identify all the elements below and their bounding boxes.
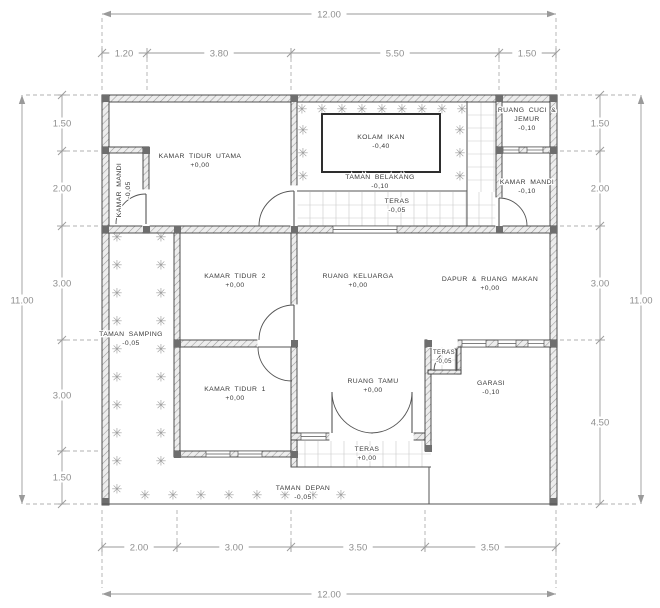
room-label-taman-belakang: TAMAN BELAKANG-0,10 (345, 174, 414, 190)
dim-arrowhead (638, 95, 644, 104)
plant-symbol: ✳ (437, 102, 448, 117)
dim-arrowhead (102, 591, 111, 597)
plant-symbol: ✳ (112, 454, 123, 469)
room-level: -0,10 (482, 389, 500, 396)
plant-symbol: ✳ (140, 488, 151, 503)
plant-symbol: ✳ (112, 286, 123, 301)
plant-symbol: ✳ (112, 398, 123, 413)
plant-symbol: ✳ (112, 426, 123, 441)
plant-symbol: ✳ (156, 370, 167, 385)
room-label-kamar-mandi-2: KAMAR MANDI-0,10 (500, 179, 554, 195)
dim-arrowhead (547, 591, 556, 597)
dim-arrowhead (19, 95, 25, 104)
room-level: +0,00 (225, 282, 244, 289)
column (550, 226, 557, 233)
dim-segment-label: 1.50 (591, 118, 610, 129)
plant-symbol: ✳ (156, 426, 167, 441)
plant-symbol: ✳ (337, 102, 348, 117)
dim-overall-label: 12.00 (317, 589, 341, 600)
dim-segment-label: 3.00 (53, 278, 72, 289)
plant-symbol: ✳ (252, 488, 263, 503)
column (550, 147, 557, 154)
plant-symbol: ✳ (298, 146, 309, 161)
room-name-line: KAMAR MANDI (500, 179, 554, 186)
door-swing-arc (259, 191, 294, 226)
column (291, 340, 298, 347)
plant-symbol: ✳ (156, 398, 167, 413)
column (174, 340, 181, 347)
dim-arrowhead (547, 11, 556, 17)
plant-symbol: ✳ (455, 123, 466, 138)
room-level: -0,05 (294, 494, 312, 501)
dim-segment-label: 3.50 (481, 542, 500, 553)
plant-symbol: ✳ (336, 488, 347, 503)
dim-segment-label: 1.50 (518, 48, 537, 59)
wall (102, 95, 109, 505)
plant-symbol: ✳ (156, 342, 167, 357)
dim-segment-label: 2.00 (53, 183, 72, 194)
column (174, 451, 181, 458)
room-level: -0,05 (125, 181, 132, 199)
room-label-kamar-tidur-2: KAMAR TIDUR 2+0,00 (204, 273, 266, 289)
room-name-line: KOLAM IKAN (357, 134, 405, 141)
dim-arrowhead (19, 495, 25, 504)
floor-plan-document: ✳✳✳✳✳✳✳✳✳✳✳✳✳✳✳✳✳✳✳✳✳✳✳✳✳✳✳✳✳✳✳✳✳✳✳✳✳✳✳✳… (0, 0, 660, 608)
dim-segment-label: 3.00 (225, 542, 244, 553)
wall (425, 340, 431, 451)
room-label-ruang-keluarga: RUANG KELUARGA+0,00 (322, 273, 393, 289)
plant-symbol: ✳ (297, 102, 308, 117)
column (143, 147, 150, 154)
column (143, 226, 150, 233)
dim-segment-label: 3.80 (210, 48, 229, 59)
room-name-line: JEMUR (514, 116, 539, 123)
dim-segment-label: 1.20 (115, 48, 134, 59)
door-opening (257, 339, 291, 347)
room-level: +0,00 (225, 395, 244, 402)
door-swing-arc (332, 392, 373, 433)
room-name-line: RUANG KELUARGA (322, 273, 393, 280)
column (291, 226, 298, 233)
door-swing-arc (258, 347, 292, 381)
dim-segment-label: 3.00 (591, 278, 610, 289)
dim-segment-label: 2.00 (130, 542, 149, 553)
room-name-line: RUANG CUCI & (498, 107, 556, 114)
dim-segment-label: 5.50 (386, 48, 405, 59)
room-name-line: RUANG TAMU (347, 378, 398, 385)
dim-segment-label: 3.00 (53, 390, 72, 401)
plant-symbol: ✳ (357, 102, 368, 117)
room-name-line: TERAS (355, 446, 380, 453)
column (496, 226, 503, 233)
plant-symbol: ✳ (317, 102, 328, 117)
door-swing-arc (371, 392, 412, 433)
plant-symbol: ✳ (196, 488, 207, 503)
room-name-line: GARASI (477, 380, 505, 387)
plant-symbol: ✳ (455, 146, 466, 161)
wall (174, 451, 297, 457)
dim-arrowhead (638, 495, 644, 504)
plant-symbol: ✳ (112, 370, 123, 385)
plant-symbol: ✳ (156, 286, 167, 301)
plant-symbol: ✳ (112, 342, 123, 357)
room-name-line: KAMAR MANDI (116, 163, 123, 217)
room-name-line: TERAS (433, 350, 455, 356)
wall (102, 226, 557, 233)
dim-segment-label: 3.50 (349, 542, 368, 553)
wall (291, 233, 297, 305)
door-swing-arc (499, 198, 527, 226)
plant-symbol: ✳ (457, 102, 468, 117)
room-level: -0,10 (518, 125, 536, 132)
room-level: +0,00 (480, 285, 499, 292)
plant-symbol: ✳ (224, 488, 235, 503)
wall (550, 95, 557, 505)
room-level: -0,40 (372, 143, 390, 150)
room-name-line: TAMAN DEPAN (276, 485, 331, 492)
room-level: +0,00 (363, 387, 382, 394)
plant-symbol: ✳ (156, 230, 167, 245)
wall (102, 147, 149, 153)
room-label-ruang-tamu: RUANG TAMU+0,00 (347, 378, 398, 394)
dim-overall-label: 12.00 (317, 9, 341, 20)
dim-overall-label: 11.00 (629, 295, 652, 306)
room-level: -0,05 (122, 340, 140, 347)
column (425, 445, 432, 452)
plant-symbol: ✳ (156, 258, 167, 273)
plant-symbol: ✳ (417, 102, 428, 117)
column (174, 226, 181, 233)
column (496, 95, 503, 102)
plant-symbol: ✳ (112, 314, 123, 329)
room-level: -0,05 (436, 359, 452, 365)
dim-overall-label: 11.00 (10, 295, 33, 306)
room-name-line: KAMAR TIDUR UTAMA (159, 153, 242, 160)
room-name-line: KAMAR TIDUR 2 (204, 273, 266, 280)
room-label-dapur-ruang-makan: DAPUR & RUANG MAKAN+0,00 (442, 276, 538, 292)
plant-symbol: ✳ (112, 258, 123, 273)
room-level: +0,00 (348, 282, 367, 289)
room-level: +0,00 (357, 455, 376, 462)
plant-symbol: ✳ (455, 169, 466, 184)
column (496, 147, 503, 154)
plant-symbol: ✳ (397, 102, 408, 117)
plant-symbol: ✳ (298, 169, 309, 184)
door-swing-arc (259, 305, 294, 340)
column (102, 226, 109, 233)
column (550, 340, 557, 347)
wall (102, 95, 557, 102)
room-label-kamar-tidur-1: KAMAR TIDUR 1+0,00 (204, 386, 266, 402)
dim-segment-label: 1.50 (53, 118, 72, 129)
column (102, 147, 109, 154)
room-name-line: KAMAR TIDUR 1 (204, 386, 266, 393)
dim-arrowhead (102, 11, 111, 17)
room-level: +0,00 (190, 162, 209, 169)
room-label-ruang-cuci-jemur: RUANG CUCI &JEMUR-0,10 (498, 107, 556, 132)
plant-symbol: ✳ (298, 123, 309, 138)
room-name-line: TAMAN SAMPING (99, 331, 163, 338)
plant-symbol: ✳ (112, 482, 123, 497)
room-label-garasi: GARASI-0,10 (477, 380, 505, 396)
dim-segment-label: 2.00 (591, 183, 610, 194)
column (550, 95, 557, 102)
plant-symbol: ✳ (156, 314, 167, 329)
plant-symbol: ✳ (377, 102, 388, 117)
plant-symbol: ✳ (168, 488, 179, 503)
room-name-line: DAPUR & RUANG MAKAN (442, 276, 538, 283)
floor-plan-canvas: ✳✳✳✳✳✳✳✳✳✳✳✳✳✳✳✳✳✳✳✳✳✳✳✳✳✳✳✳✳✳✳✳✳✳✳✳✳✳✳✳… (0, 0, 660, 608)
room-level: -0,10 (371, 183, 389, 190)
plant-symbol: ✳ (112, 230, 123, 245)
column (102, 95, 109, 102)
room-level: -0,05 (388, 207, 406, 214)
dim-segment-label: 1.50 (53, 472, 72, 483)
door-opening (329, 432, 413, 440)
plant-symbol: ✳ (156, 454, 167, 469)
room-label-kamar-mandi-1: KAMAR MANDI-0,05 (116, 163, 132, 217)
column (425, 340, 432, 347)
room-label-kamar-tidur-utama: KAMAR TIDUR UTAMA+0,00 (159, 153, 242, 169)
room-name-line: TERAS (385, 198, 410, 205)
room-level: -0,10 (518, 188, 536, 195)
column (291, 451, 298, 458)
room-name-line: TAMAN BELAKANG (345, 174, 414, 181)
dim-segment-label: 4.50 (591, 417, 610, 428)
